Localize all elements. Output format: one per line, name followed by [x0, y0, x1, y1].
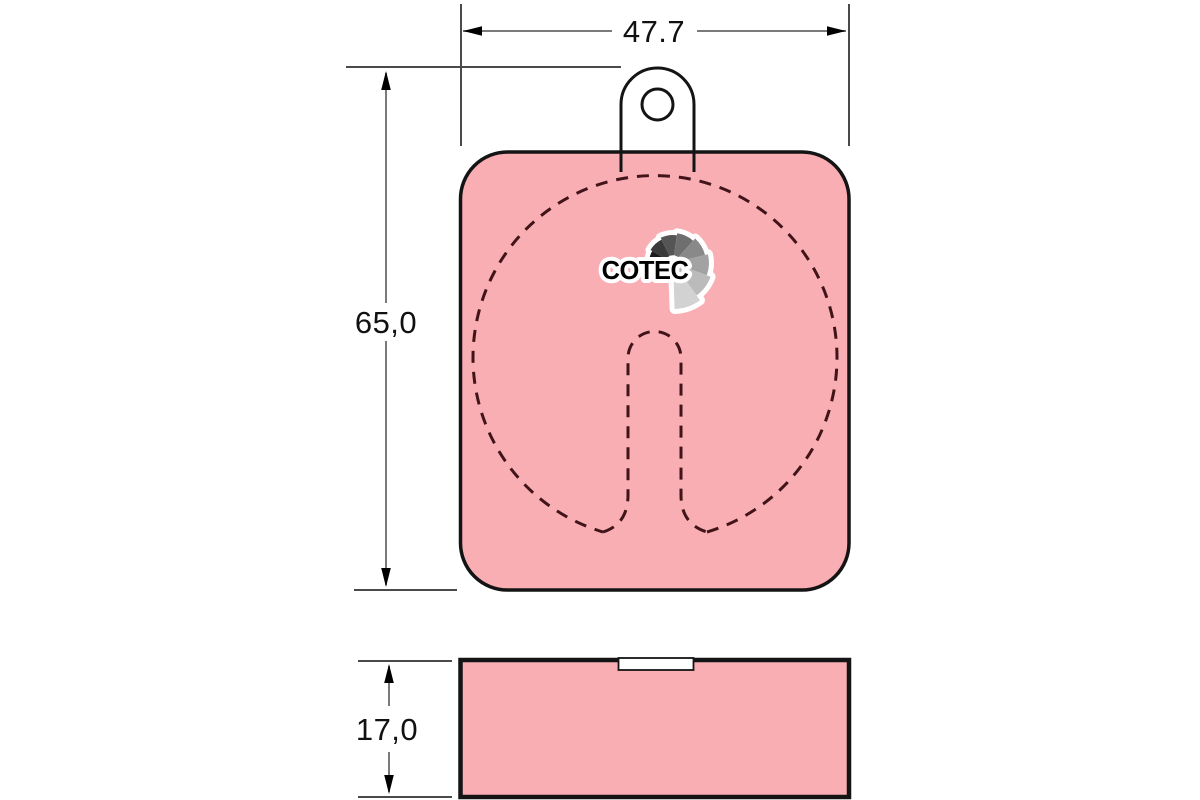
arrowhead-right [827, 26, 846, 36]
height-dimension-label: 65,0 [355, 305, 417, 340]
arrowhead-down [381, 568, 391, 587]
logo-text: COTEC [602, 257, 689, 285]
backplate-notch [619, 658, 694, 670]
arrowhead-down [384, 775, 394, 794]
thickness-dimension: 17,0 [356, 661, 452, 797]
pad-side-profile [461, 660, 850, 797]
brake-pad-drawing: COTEC 47.7 65,0 17,0 [0, 0, 1200, 800]
arrowhead-up [384, 664, 394, 683]
arrowhead-up [381, 71, 391, 90]
pad-backplate [461, 152, 850, 590]
drawing-canvas: COTEC 47.7 65,0 17,0 [0, 0, 1200, 800]
width-dimension-label: 47.7 [623, 14, 685, 49]
tab-hole [642, 89, 673, 120]
thickness-dimension-label: 17,0 [356, 712, 418, 747]
front-view: COTEC [461, 68, 850, 590]
side-view [461, 658, 850, 797]
arrowhead-left [463, 26, 482, 36]
